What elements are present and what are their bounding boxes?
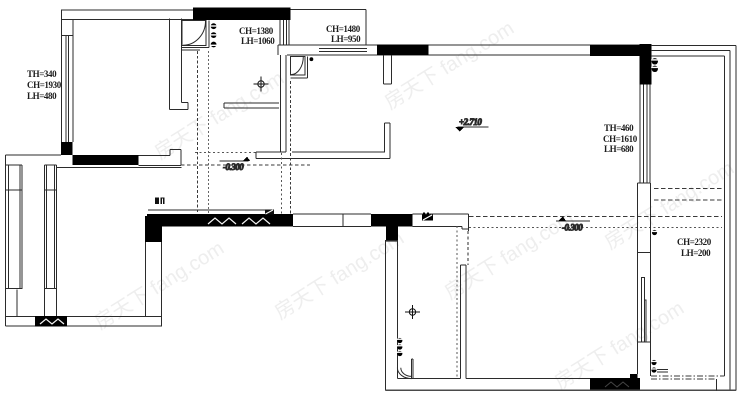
svg-text:CH=2320: CH=2320 [677, 237, 712, 247]
svg-text:-0.300: -0.300 [562, 223, 583, 233]
svg-text:LH=200: LH=200 [681, 248, 711, 258]
svg-text:LH=680: LH=680 [604, 144, 634, 154]
svg-text:TH=460: TH=460 [604, 123, 634, 133]
svg-text:LH=950: LH=950 [331, 34, 361, 44]
svg-text:LH=480: LH=480 [27, 91, 57, 101]
svg-text:-0.300: -0.300 [223, 162, 244, 172]
svg-text:CH=1480: CH=1480 [326, 24, 361, 34]
svg-text:TH=340: TH=340 [27, 69, 57, 79]
svg-text:LH=1060: LH=1060 [241, 36, 275, 46]
svg-text:CH=1610: CH=1610 [603, 134, 638, 144]
svg-text:CH=1380: CH=1380 [239, 26, 274, 36]
svg-text:+2.710: +2.710 [459, 117, 482, 127]
svg-text:CH=1930: CH=1930 [27, 80, 62, 90]
